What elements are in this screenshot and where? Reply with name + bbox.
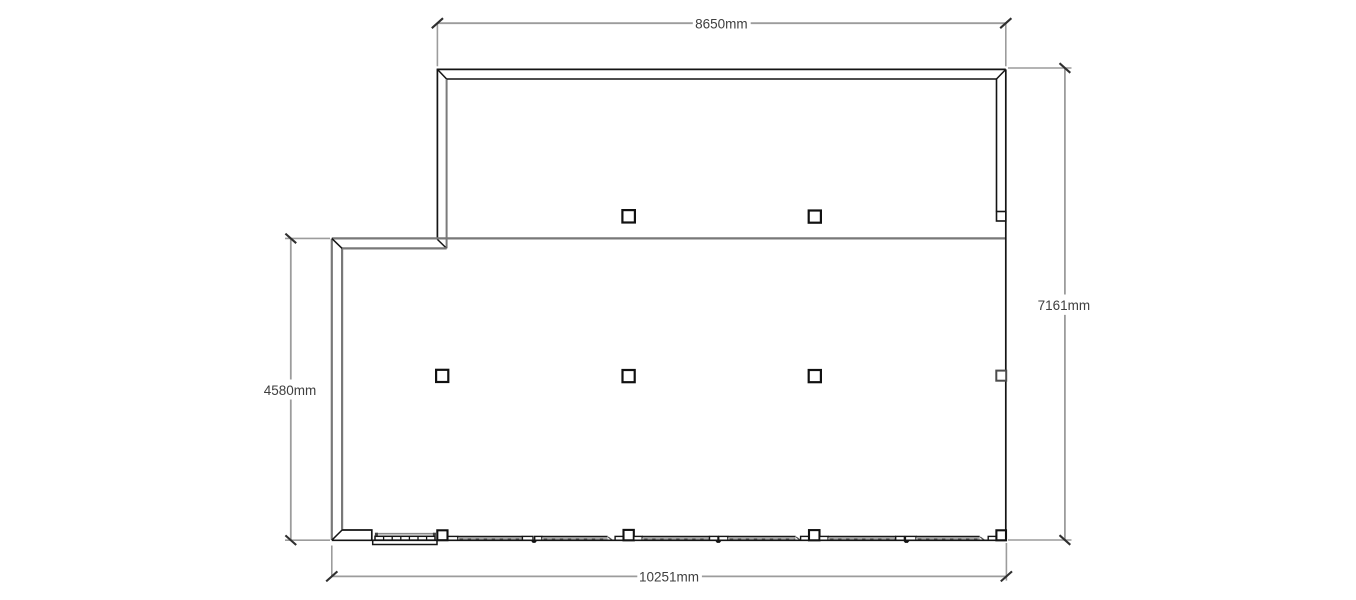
svg-text:10251mm: 10251mm <box>639 569 699 584</box>
svg-text:8650mm: 8650mm <box>695 16 748 31</box>
svg-text:7161mm: 7161mm <box>1038 298 1091 313</box>
svg-text:4580mm: 4580mm <box>264 383 317 398</box>
